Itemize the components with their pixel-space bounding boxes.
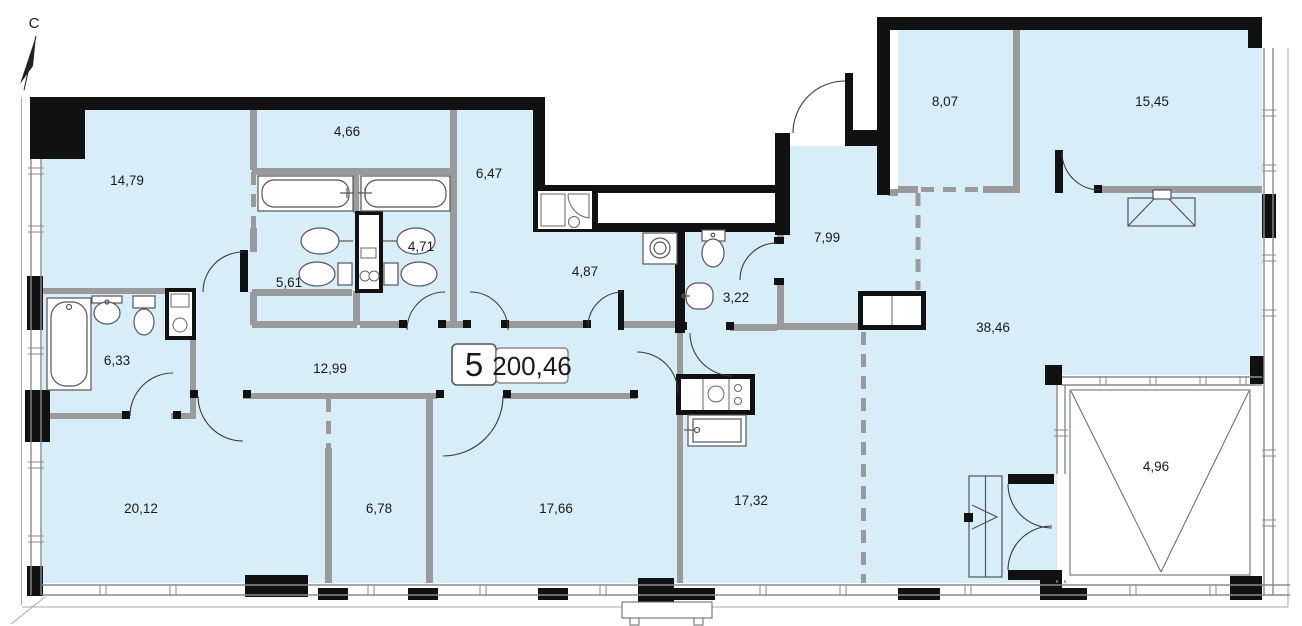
sink-icon (92, 296, 122, 324)
total-area: 200,46 (492, 351, 572, 381)
room-area-label: 4,87 (572, 264, 598, 279)
entry-door-arc (793, 81, 845, 133)
apartment-number: 5 (465, 346, 483, 383)
toilet-icon (133, 296, 155, 335)
room-area-label: 12,99 (313, 361, 347, 376)
balcony-floor (1057, 375, 1262, 583)
toilet-icon (702, 230, 725, 267)
room-area-label: 6,47 (476, 166, 502, 181)
shower-basin-icon (684, 415, 746, 446)
room-area-label: 17,32 (734, 493, 768, 508)
room-area-label: 14,79 (110, 173, 144, 188)
apartment-floor (42, 30, 1262, 583)
room-area-label: 17,66 (539, 501, 573, 516)
room-area-label: 4,71 (408, 239, 434, 254)
room-area-label: 8,07 (932, 94, 958, 109)
north-arrow-edge (24, 36, 36, 90)
bathtub-icon (358, 176, 450, 211)
room-area-label: 4,66 (334, 124, 360, 139)
room-area-label: 6,78 (366, 501, 392, 516)
floor-plan: С 5 200,46 14,79 4,66 6,47 4,71 5,61 4,8… (0, 0, 1302, 626)
north-indicator: С (20, 15, 40, 90)
room-area-label: 3,22 (723, 290, 749, 305)
porch (622, 602, 712, 625)
bathtub-icon (47, 298, 91, 390)
room-area-label: 20,12 (124, 501, 158, 516)
bathtub-icon (258, 176, 354, 211)
washing-machine-icon (643, 233, 677, 264)
floor-plan-canvas: С 5 200,46 14,79 4,66 6,47 4,71 5,61 4,8… (0, 0, 1302, 626)
room-area-label: 5,61 (276, 275, 302, 290)
room-area-label: 6,33 (104, 353, 130, 368)
room-area-label: 15,45 (1135, 94, 1169, 109)
toilet-icon (299, 262, 352, 286)
room-area-label: 38,46 (976, 320, 1010, 335)
north-label: С (29, 15, 40, 32)
north-arrow-icon (20, 36, 36, 84)
apartment-badge[interactable]: 5 200,46 (452, 344, 572, 385)
room-area-label: 7,99 (814, 230, 840, 245)
room-area-label: 4,96 (1143, 459, 1169, 474)
toilet-icon (384, 262, 437, 286)
